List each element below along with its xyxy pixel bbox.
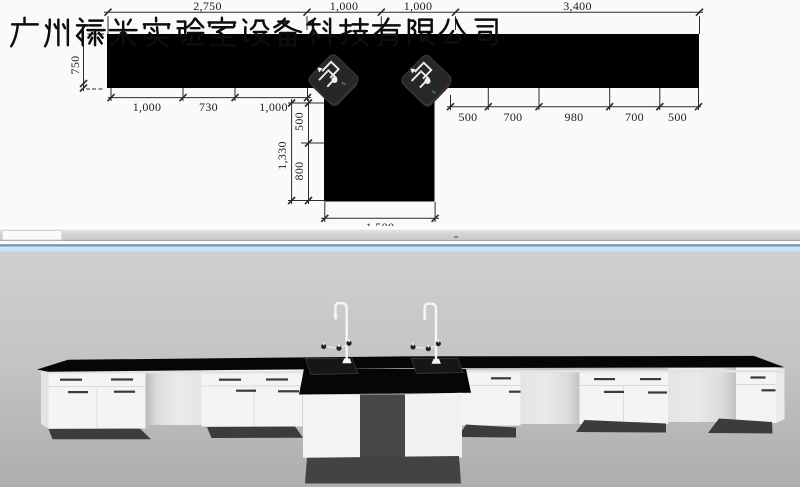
svg-text:730: 730 [199, 100, 218, 114]
svg-text:500: 500 [459, 110, 478, 124]
svg-text:980: 980 [565, 110, 584, 124]
svg-text:500: 500 [292, 112, 306, 131]
svg-text:500: 500 [668, 110, 687, 124]
svg-text:1,000: 1,000 [133, 100, 162, 114]
svg-text:800: 800 [292, 162, 306, 181]
svg-text:700: 700 [504, 110, 523, 124]
svg-text:1,000: 1,000 [404, 0, 433, 13]
svg-text:3,400: 3,400 [563, 0, 592, 13]
svg-text:2,750: 2,750 [193, 0, 222, 13]
svg-text:700: 700 [625, 110, 644, 124]
svg-text:750: 750 [68, 56, 82, 75]
svg-text:1,000: 1,000 [259, 100, 288, 114]
svg-text:1,000: 1,000 [330, 0, 359, 13]
svg-text:1,330: 1,330 [275, 141, 289, 170]
